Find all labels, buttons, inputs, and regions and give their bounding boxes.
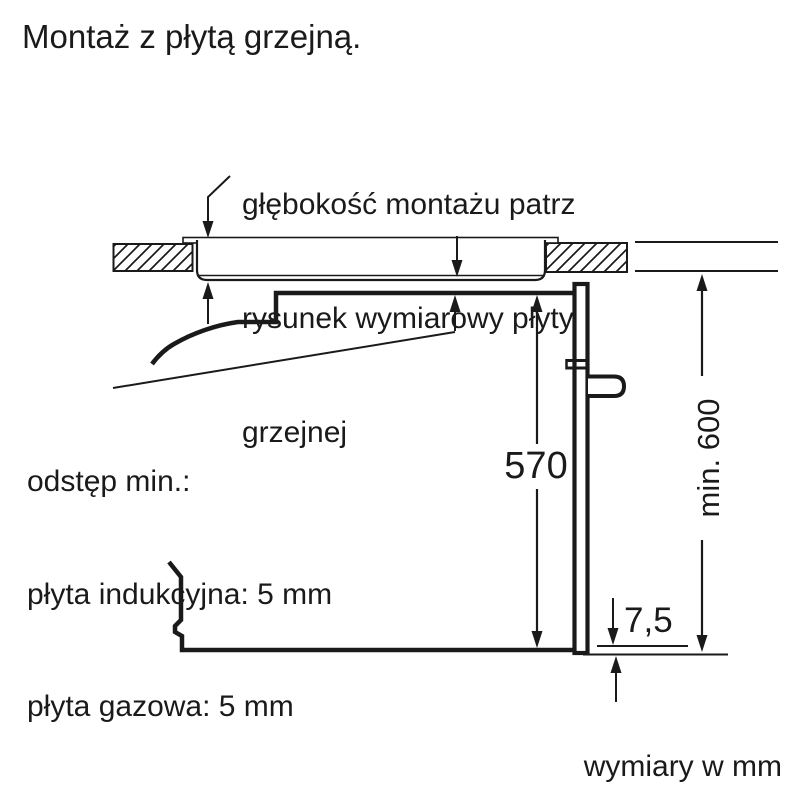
oven-front-panel [575,284,588,653]
dim-600-label: min. 600 [624,373,794,543]
dim-7-5-label: 7,5 [624,601,673,641]
clearance-arrow-left [203,282,214,324]
dim-7-5-down-arrow [608,598,619,645]
dim-7-5-up-arrow [611,656,622,702]
worktop-left-section [114,244,193,271]
installation-diagram: Montaż z płytą grzejną. głębokość montaż… [0,0,800,800]
units-note: wymiary w mm [532,750,782,784]
diagram-title: Montaż z płytą grzejną. [22,18,361,56]
hob-depth-note-line1: głębokość montażu patrz [242,186,576,224]
clearance-note-line1: odstęp min.: [27,463,342,501]
clearance-note-line3: płyta gazowa: 5 mm [27,688,342,726]
dim-7-5-reference-lines [583,646,728,655]
depth-note-leader-arrow [203,176,231,238]
hob-depth-note-line2: rysunek wymiarowy płyty [242,300,576,338]
clearance-note-line2: płyta indukcyjna: 5 mm [27,576,342,614]
clearance-note: odstęp min.: płyta indukcyjna: 5 mm płyt… [27,388,342,800]
worktop-continuation-lines [635,242,778,271]
dim-570-label: 570 [496,445,576,488]
oven-control-knob-icon [588,377,624,397]
